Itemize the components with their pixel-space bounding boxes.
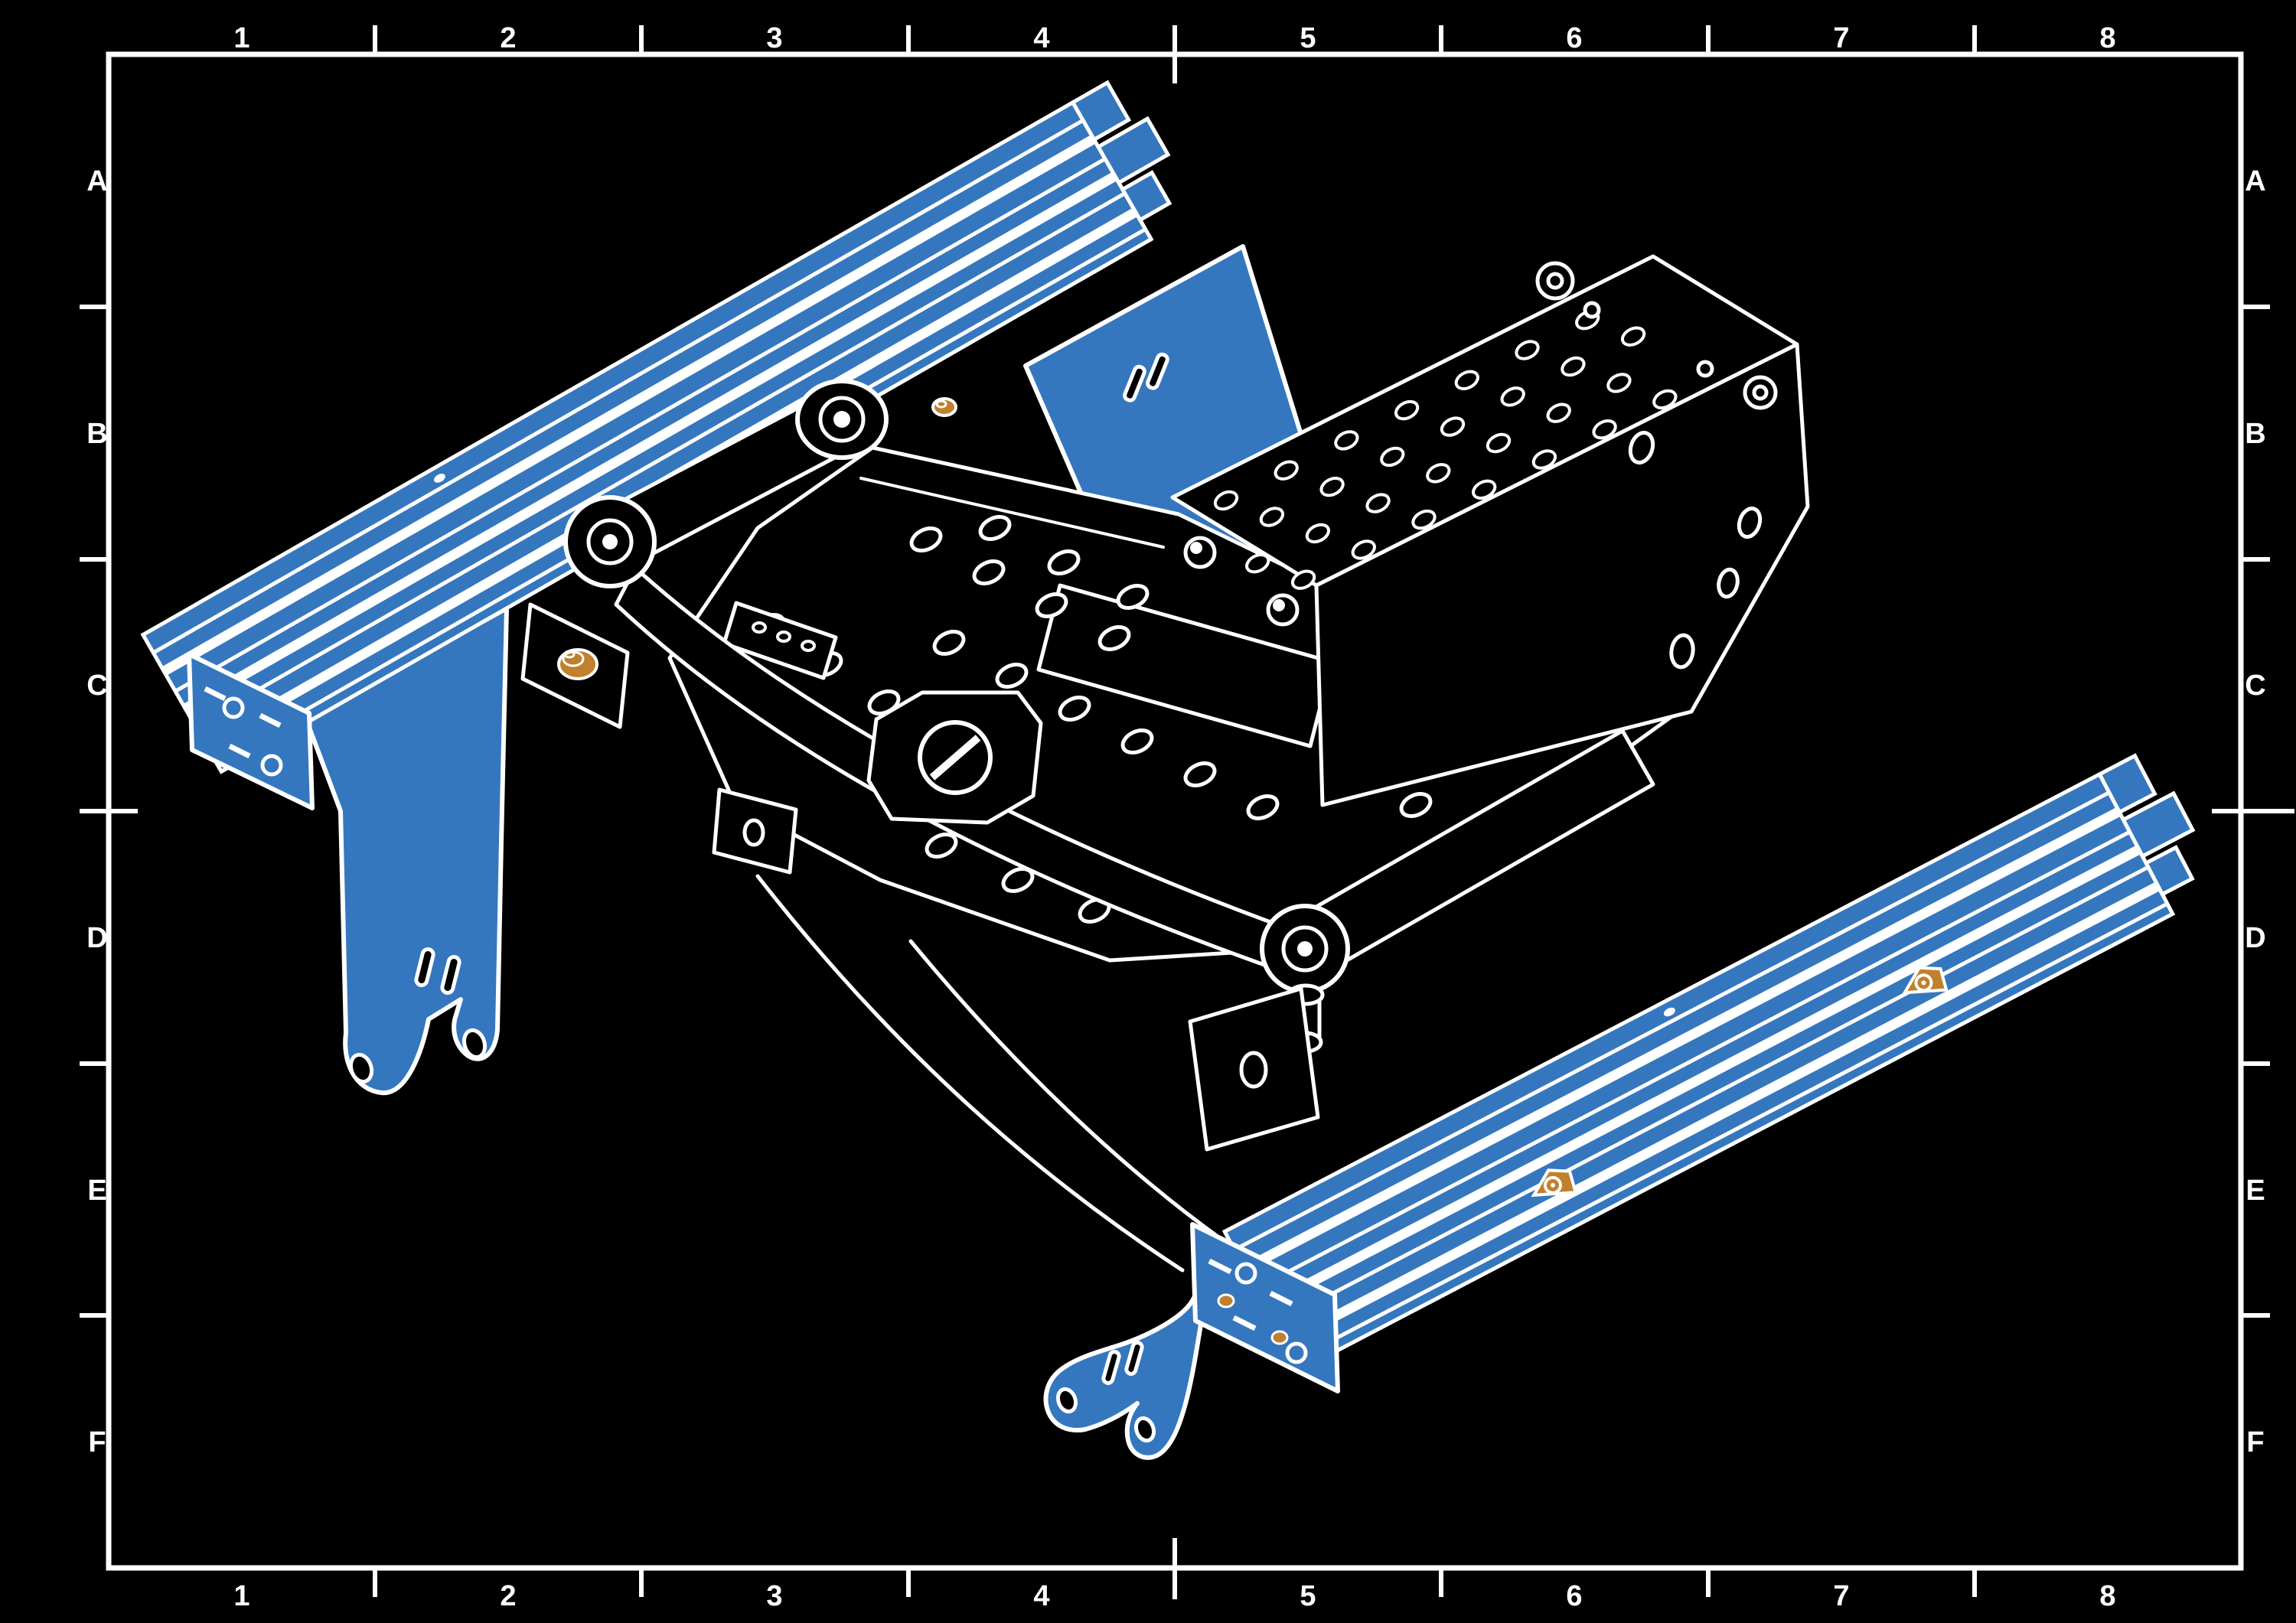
rail-fastener-small [933,399,956,416]
row-label-right-d: D [2245,922,2265,954]
side-plate-hole [1241,1053,1266,1087]
col-label-bottom-6: 6 [1566,1580,1582,1612]
seat-bracket-bottom [1046,1293,1206,1458]
endface-fastener [1272,1331,1287,1344]
pivot-a-ball [602,534,618,549]
seat-bracket-bottom-plate [1046,1293,1206,1458]
row-label-left-f: F [88,1426,106,1458]
hex-access-plate [869,693,1041,823]
col-label-bottom-2: 2 [500,1580,516,1612]
drawing-canvas: 1 2 3 4 5 6 7 8 1 2 3 4 5 6 7 8 A B C D … [0,0,2296,1623]
drawing-sheet: 1 2 3 4 5 6 7 8 1 2 3 4 5 6 7 8 A B C D … [0,0,2296,1623]
col-label-top-1: 1 [233,22,249,54]
col-label-top-3: 3 [766,22,782,54]
row-label-left-b: B [86,418,107,450]
row-label-right-c: C [2245,670,2265,702]
col-label-top-8: 8 [2099,22,2115,54]
col-label-bottom-8: 8 [2099,1580,2115,1612]
col-label-top-7: 7 [1833,22,1849,54]
col-label-top-5: 5 [1300,22,1316,54]
row-label-right-a: A [2245,165,2265,197]
endface-fastener [1218,1295,1234,1307]
col-label-bottom-7: 7 [1833,1580,1849,1612]
row-ticks-right [2212,307,2294,1315]
row-label-left-e: E [87,1175,106,1207]
col-label-bottom-3: 3 [766,1580,782,1612]
col-label-top-6: 6 [1566,22,1582,54]
row-label-right-f: F [2246,1426,2264,1458]
col-label-top-2: 2 [500,22,516,54]
row-label-left-a: A [86,165,107,197]
row-label-right-b: B [2245,418,2265,450]
side-plate [1190,989,1318,1149]
row-label-left-d: D [86,922,107,954]
col-label-bottom-4: 4 [1033,1580,1049,1612]
assembly-drawing [143,74,2223,1458]
pivot-b-ball [1297,941,1313,957]
rod-end-upper-ball [833,411,850,428]
col-label-bottom-5: 5 [1300,1580,1316,1612]
row-label-right-e: E [2245,1175,2265,1207]
mount-tab-hole [745,820,763,845]
row-label-left-c: C [86,670,107,702]
clevis-bracket [523,605,628,727]
col-label-top-4: 4 [1033,22,1049,54]
col-label-bottom-1: 1 [233,1580,249,1612]
